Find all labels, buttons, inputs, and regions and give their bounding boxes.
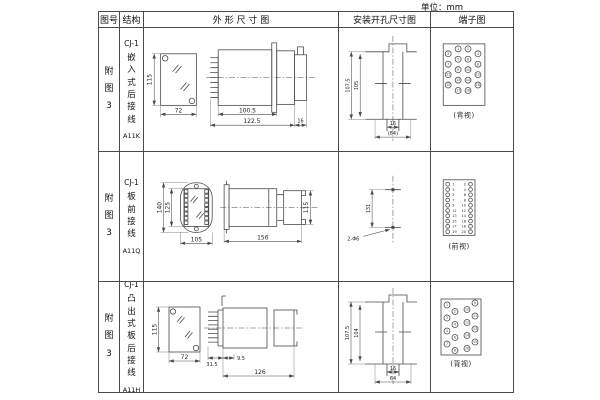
header-cell-figure: 图号 [99, 12, 120, 28]
row1-outline-cell: 115 72 100.5 122.5 16 [144, 28, 339, 152]
terminal-circles-left: 135791113151719 [446, 182, 458, 233]
header-structure-label: 结构 [122, 13, 140, 26]
structure-type: 嵌入式后接线 [127, 52, 137, 126]
relay-model: CJ-1 [124, 282, 139, 289]
svg-text:18: 18 [461, 225, 466, 229]
svg-text:7: 7 [452, 198, 454, 202]
svg-text:18: 18 [466, 89, 470, 93]
svg-text:3: 3 [446, 316, 448, 320]
header-figure-label: 图号 [100, 13, 118, 26]
view-caption: (前视) [448, 241, 469, 250]
svg-text:16: 16 [461, 219, 466, 223]
svg-text:16: 16 [476, 83, 480, 87]
row3-structure-cell: CJ-1 凸出式板后接线 A11H [120, 282, 144, 392]
row3-outline-cell: 115 72 31.5 9.5 126 [144, 282, 339, 392]
dim-body-length: 100.5 [238, 107, 255, 114]
dim-front-width: 105 [190, 236, 202, 243]
svg-text:9: 9 [452, 204, 455, 208]
structure-type: 板前接线 [127, 191, 137, 240]
svg-text:10: 10 [466, 68, 470, 72]
svg-text:10: 10 [461, 204, 466, 208]
svg-text:3: 3 [447, 52, 449, 56]
svg-text:15: 15 [452, 219, 457, 223]
row1-mounting-cell: 107.5 105 16 (64) [339, 28, 431, 152]
svg-text:17: 17 [456, 89, 460, 93]
a11h-mounting-drawing: 107.5 104 16 64 [339, 282, 431, 392]
svg-text:11: 11 [446, 73, 450, 77]
dim-tail-length: 16 [297, 119, 303, 125]
svg-text:14: 14 [465, 334, 469, 338]
a11q-outline-drawing: 140 125 105 156 115 [144, 152, 339, 281]
svg-text:10: 10 [465, 308, 469, 312]
relay-code: A11K [123, 132, 140, 140]
svg-text:8: 8 [454, 349, 456, 353]
row3-figure-cell: 附图3 [99, 282, 120, 392]
a11h-outline-drawing: 115 72 31.5 9.5 126 [144, 282, 339, 392]
row1-figure-cell: 附图3 [99, 28, 120, 152]
dim-total-length: 126 [254, 369, 266, 376]
svg-text:13: 13 [452, 214, 457, 218]
a11k-mounting-drawing: 107.5 105 16 (64) [339, 28, 431, 151]
svg-text:1: 1 [457, 47, 459, 51]
svg-text:8: 8 [477, 62, 479, 66]
svg-text:5: 5 [446, 329, 448, 333]
terminal-circles: 123456789101112131415161718 [445, 46, 481, 94]
svg-text:7: 7 [447, 62, 449, 66]
hole-spec-label: 2-Φ6 [347, 236, 359, 242]
dim-front-width: 72 [174, 107, 182, 114]
dim-mount-outer: 107.5 [345, 326, 351, 340]
svg-text:11: 11 [452, 209, 457, 213]
dim-side-length: 156 [257, 234, 269, 241]
dim-hole-distance: 131 [366, 204, 372, 213]
svg-text:12: 12 [465, 321, 469, 325]
terminal-circles-right: 2468101214161820 [461, 182, 472, 233]
dim-front-height: 115 [151, 324, 158, 336]
terminal-circles: 12345678910111213141516 [444, 300, 478, 354]
relay-code: A11Q [123, 247, 141, 255]
row2-outline-cell: 140 125 105 156 115 [144, 152, 339, 282]
svg-text:9: 9 [457, 68, 459, 72]
svg-text:16: 16 [465, 347, 469, 351]
dim-front-outer-height: 140 [156, 202, 163, 214]
dim-front-inner-height: 125 [164, 202, 171, 214]
row2-figure-cell: 附图3 [99, 152, 120, 282]
side-view-lines [206, 43, 315, 127]
svg-text:13: 13 [456, 78, 460, 82]
svg-text:15: 15 [473, 340, 477, 344]
a11q-mounting-drawing: 131 2-Φ6 [339, 152, 431, 281]
a11q-terminal-diagram: 135791113151719 2468101214161820 (前视) [431, 152, 513, 281]
svg-text:11: 11 [473, 314, 477, 318]
svg-text:7: 7 [446, 342, 448, 346]
header-mounting-label: 安装开孔尺寸图 [353, 13, 416, 26]
header-cell-structure: 结构 [120, 12, 144, 28]
svg-text:2: 2 [467, 47, 469, 51]
dim-side-height: 115 [302, 202, 309, 214]
svg-text:4: 4 [477, 52, 479, 56]
svg-text:1: 1 [452, 183, 454, 187]
row1-terminal-cell: 123456789101112131415161718 (背视) [431, 28, 513, 152]
dim-slot-width: 16 [389, 366, 395, 372]
svg-text:17: 17 [452, 225, 457, 229]
a11k-outline-drawing: 115 72 100.5 122.5 16 [144, 28, 339, 151]
dim-total-length: 122.5 [243, 118, 260, 125]
figure-number: 附图3 [104, 311, 115, 362]
row3-terminal-cell: 12345678910111213141516 (背视) [431, 282, 513, 392]
dimension-table: 图号 结构 外 形 尺 寸 图 安装开孔尺寸图 端子图 附图3 CJ-1 嵌入式… [98, 11, 514, 393]
dim-mount-inner: 105 [354, 81, 360, 90]
header-cell-mounting: 安装开孔尺寸图 [339, 12, 431, 28]
svg-text:2: 2 [454, 310, 456, 314]
dim-gap-length: 9.5 [237, 356, 245, 362]
view-caption: (背视) [453, 110, 474, 119]
side-view-lines [204, 296, 304, 378]
dim-mount-outer: 107.5 [345, 78, 351, 92]
svg-text:14: 14 [461, 214, 466, 218]
figure-number: 附图3 [104, 191, 115, 242]
datasheet-page: 单位：mm 图号 结构 外 形 尺 寸 图 安装开孔尺寸图 端子图 附图3 CJ… [0, 0, 600, 400]
svg-text:5: 5 [457, 57, 459, 61]
dim-mount-inner: 104 [354, 328, 360, 338]
front-view-lines [156, 307, 200, 363]
svg-text:20: 20 [461, 230, 466, 234]
svg-text:6: 6 [467, 57, 469, 61]
view-caption: (背视) [450, 359, 471, 368]
relay-model: CJ-1 [124, 39, 139, 48]
svg-text:12: 12 [461, 209, 466, 213]
svg-text:8: 8 [464, 198, 467, 202]
svg-text:6: 6 [454, 336, 456, 340]
relay-model: CJ-1 [124, 178, 139, 187]
svg-text:9: 9 [474, 301, 476, 305]
header-terminal-label: 端子图 [458, 13, 485, 26]
svg-text:12: 12 [476, 73, 480, 77]
svg-text:6: 6 [464, 193, 467, 197]
svg-text:4: 4 [464, 188, 467, 192]
header-outline-label: 外 形 尺 寸 图 [213, 13, 269, 26]
row2-mounting-cell: 131 2-Φ6 [339, 152, 431, 282]
relay-code: A11H [123, 386, 141, 392]
svg-text:3: 3 [452, 188, 454, 192]
svg-text:2: 2 [464, 183, 466, 187]
dim-comb-length: 31.5 [206, 362, 217, 368]
header-cell-terminal: 端子图 [431, 12, 513, 28]
svg-text:1: 1 [446, 303, 448, 307]
header-cell-outline: 外 形 尺 寸 图 [144, 12, 339, 28]
a11h-terminal-diagram: 12345678910111213141516 (背视) [431, 282, 513, 392]
figure-number: 附图3 [104, 64, 115, 115]
dim-front-width: 72 [180, 354, 188, 361]
a11k-terminal-diagram: 123456789101112131415161718 (背视) [431, 28, 513, 151]
svg-text:13: 13 [473, 327, 477, 331]
svg-text:14: 14 [466, 78, 470, 82]
row2-structure-cell: CJ-1 板前接线 A11Q [120, 152, 144, 282]
row2-terminal-cell: 135791113151719 2468101214161820 (前视) [431, 152, 513, 282]
row3-mounting-cell: 107.5 104 16 64 [339, 282, 431, 392]
svg-text:5: 5 [452, 193, 454, 197]
svg-text:19: 19 [452, 230, 457, 234]
dim-slot-width: 16 [389, 121, 395, 127]
structure-type: 凸出式板后接线 [127, 293, 137, 379]
row1-structure-cell: CJ-1 嵌入式后接线 A11K [120, 28, 144, 152]
dim-front-height: 115 [146, 74, 153, 86]
dim-total-width: (64) [387, 131, 397, 137]
dim-total-width: 64 [389, 376, 395, 382]
svg-text:15: 15 [446, 83, 450, 87]
svg-text:4: 4 [454, 323, 456, 327]
